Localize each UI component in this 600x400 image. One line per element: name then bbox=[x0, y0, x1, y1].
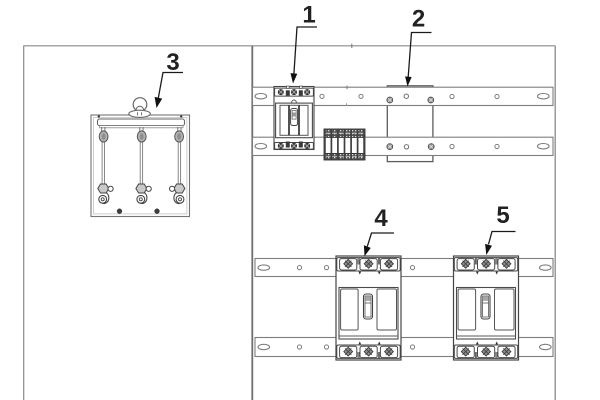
svg-text:5: 5 bbox=[496, 202, 509, 229]
svg-text:1: 1 bbox=[302, 1, 315, 28]
svg-text:2: 2 bbox=[412, 5, 425, 32]
svg-text:4: 4 bbox=[374, 205, 388, 232]
